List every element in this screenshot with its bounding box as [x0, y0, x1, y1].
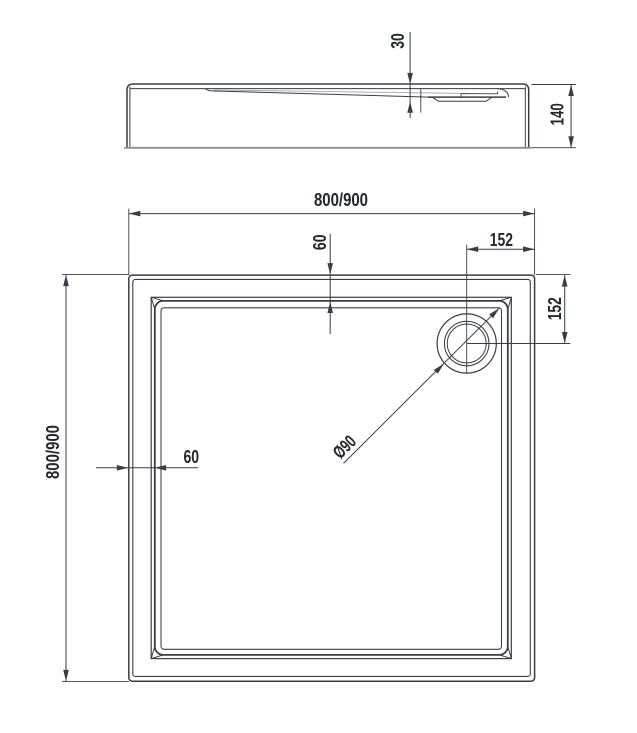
svg-text:152: 152: [545, 297, 565, 320]
svg-text:140: 140: [548, 103, 568, 125]
svg-text:Ø90: Ø90: [329, 431, 360, 462]
svg-text:800/900: 800/900: [314, 190, 368, 210]
svg-text:152: 152: [490, 230, 513, 250]
svg-text:800/900: 800/900: [43, 425, 63, 479]
svg-text:60: 60: [184, 447, 200, 467]
svg-text:60: 60: [310, 235, 330, 251]
svg-text:30: 30: [388, 33, 408, 49]
